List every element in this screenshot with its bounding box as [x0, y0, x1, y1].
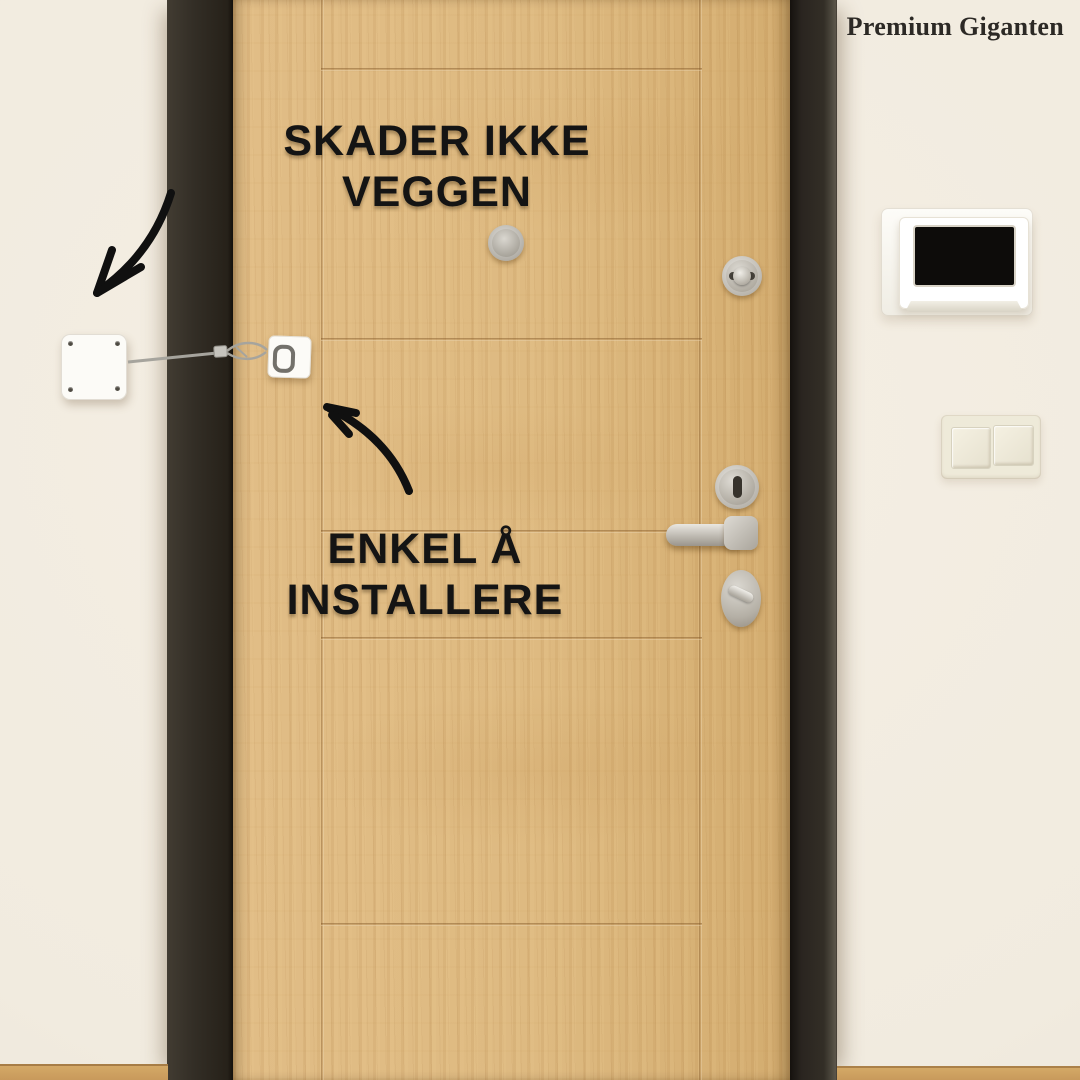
closer-wall-plate: [61, 334, 127, 400]
deadbolt-escutcheon: [721, 570, 761, 627]
door-groove: [321, 923, 702, 926]
claim-line: VEGGEN: [177, 167, 697, 218]
intercom-screen: [915, 227, 1014, 285]
door-groove: [321, 68, 702, 71]
claim-line: SKADER IKKE: [177, 116, 697, 167]
claim-line: ENKEL Å: [165, 524, 685, 575]
screw: [115, 386, 120, 391]
peephole: [488, 225, 524, 261]
thumbturn-lock: [722, 256, 762, 296]
thumbturn-knob: [733, 267, 751, 285]
skirting-board-right: [837, 1066, 1080, 1080]
keyway: [733, 476, 742, 498]
light-switch-plate: [941, 415, 1041, 479]
claim-no-wall-damage: SKADER IKKE VEGGEN: [177, 116, 697, 218]
screw: [115, 341, 120, 346]
light-switch-left: [951, 427, 991, 469]
skirting-board-left: [0, 1064, 168, 1080]
curved-arrow-down-left-icon: [97, 193, 171, 293]
intercom-base: [905, 301, 1023, 312]
door-groove: [321, 338, 702, 341]
wire-anchor: [272, 344, 295, 373]
closer-door-unit: [267, 335, 311, 378]
screw: [68, 341, 73, 346]
ad-scene: SKADER IKKE VEGGEN ENKEL Å INSTALLERE Pr…: [0, 0, 1080, 1080]
light-switch-right: [993, 425, 1034, 466]
deadbolt-turn: [727, 584, 755, 604]
door-groove: [321, 637, 702, 640]
brand-logo-text: Premium Giganten: [847, 12, 1064, 42]
key-cylinder: [715, 465, 759, 509]
handle-rosette: [724, 516, 758, 550]
screw: [68, 387, 73, 392]
claim-easy-install: ENKEL Å INSTALLERE: [165, 524, 685, 626]
door-frame-right: [790, 0, 837, 1080]
claim-line: INSTALLERE: [165, 575, 685, 626]
